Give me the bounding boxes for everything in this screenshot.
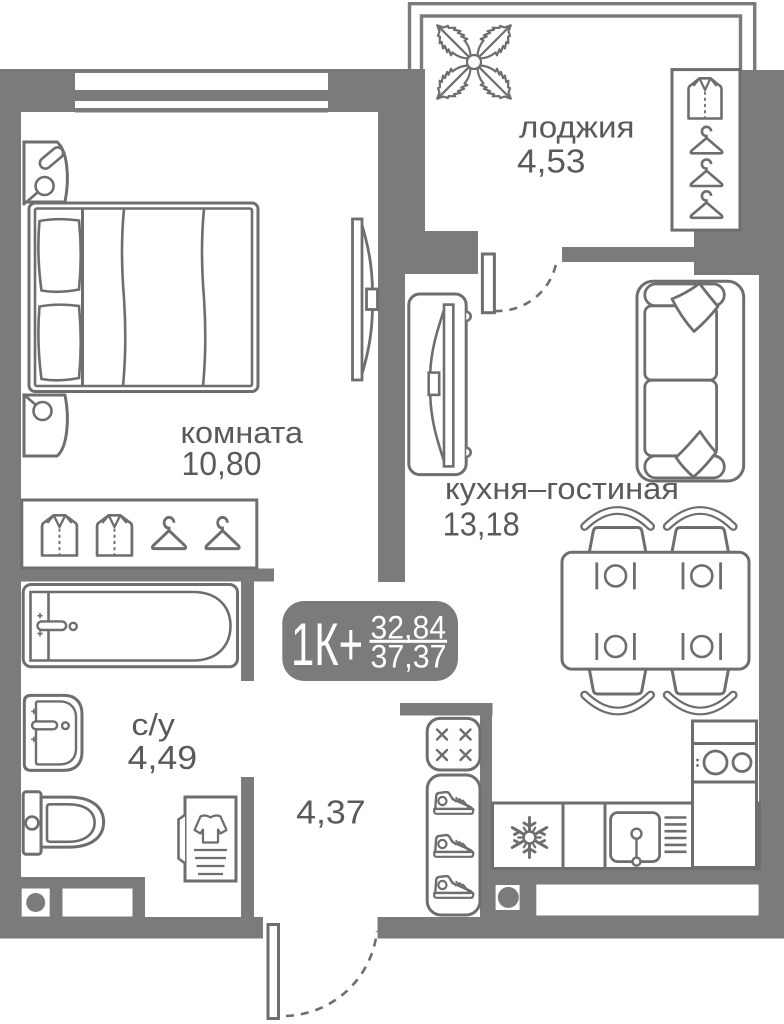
svg-text:10,80: 10,80 [182, 445, 262, 482]
svg-text:13,18: 13,18 [443, 506, 520, 543]
svg-text:1К+: 1К+ [291, 611, 363, 678]
svg-text:4,53: 4,53 [517, 143, 586, 180]
svg-text:4,49: 4,49 [128, 739, 198, 776]
svg-text:лоджия: лоджия [519, 110, 635, 145]
svg-text:37,37: 37,37 [371, 639, 447, 675]
svg-text:4,37: 4,37 [296, 794, 366, 831]
svg-text:с/у: с/у [131, 707, 175, 742]
